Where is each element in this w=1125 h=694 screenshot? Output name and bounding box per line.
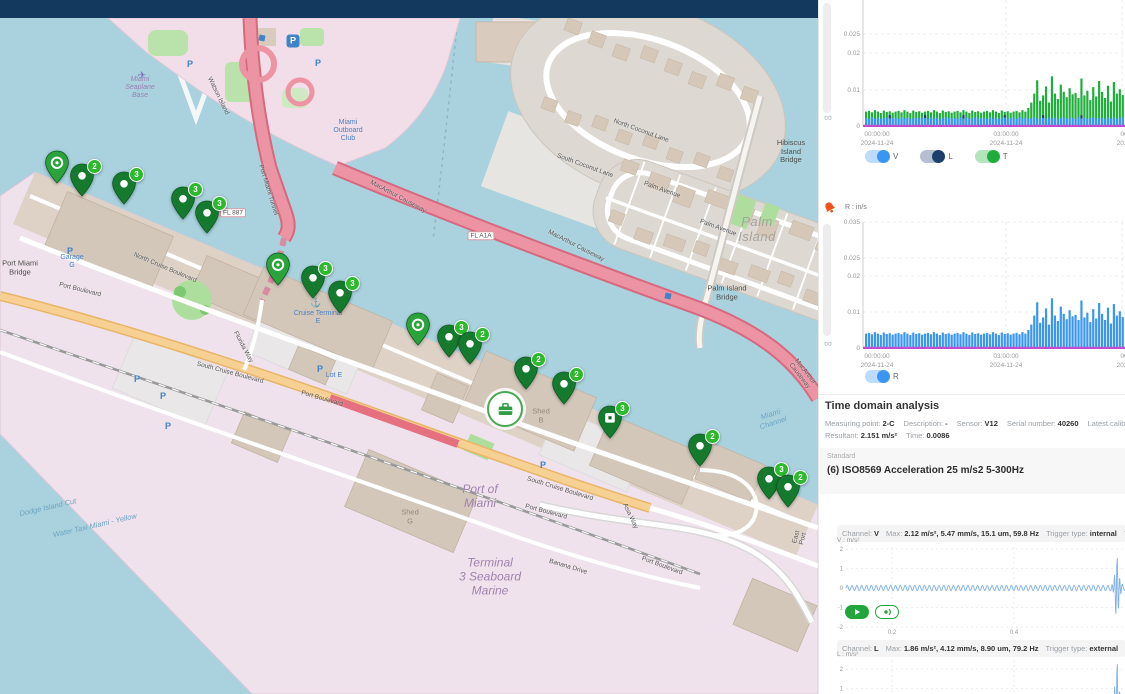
svg-text:2024-11-24: 2024-11-24 (861, 140, 894, 147)
channel-meta-value: 1.86 m/s², 4.12 mm/s, 8.90 um, 79.2 Hz (904, 644, 1039, 653)
svg-text:03:00:00: 03:00:00 (993, 353, 1019, 360)
svg-text:0: 0 (840, 586, 844, 592)
pin-icon: 2 (775, 474, 801, 508)
marker-count-badge: 3 (188, 182, 203, 197)
svg-text:0.01: 0.01 (847, 87, 860, 94)
channel-meta-value: internal (1090, 529, 1117, 538)
trend-chart-2-legend: R (865, 370, 899, 383)
parking-icon: P (134, 374, 140, 384)
series-toggle-R[interactable]: R (865, 370, 899, 383)
map-label: MacArthur Causeway (787, 357, 817, 390)
map-label: North Cruise Boulevard (132, 251, 197, 284)
pin-icon: 3 (111, 171, 137, 205)
svg-text:00:00:00: 00:00:00 (864, 131, 890, 138)
meta-label: Measuring point: (825, 419, 880, 428)
pin-icon (405, 312, 431, 346)
marker-count-badge: 3 (318, 261, 333, 276)
map-label: Watson Island (206, 76, 231, 116)
map-label: East Port (790, 527, 809, 548)
map-label: South Cruise Boulevard (196, 361, 264, 386)
measurement-meta: Measuring point:2-CDescription:-Sensor:V… (825, 419, 1125, 443)
channel-meta-value: external (1089, 644, 1118, 653)
play-icon (855, 609, 860, 615)
map-label: FL A1A (467, 231, 494, 240)
map-label: Port of Miami (462, 483, 497, 511)
parking-icon: P (187, 59, 193, 69)
top-navigation-bar (0, 0, 818, 18)
map-label: Port Boulevard (58, 281, 102, 299)
map-label: Dodge Island Cut (19, 497, 77, 518)
svg-text:1: 1 (840, 687, 844, 693)
parking-garage-icon: P (287, 35, 300, 48)
svg-text:2024-11-24: 2024-11-24 (1117, 362, 1125, 369)
meta-label: Description: (904, 419, 944, 428)
pin-icon: 2 (69, 163, 95, 197)
pin-icon: 3 (597, 405, 623, 439)
svg-text:06:00:00: 06:00:00 (1120, 131, 1125, 138)
svg-text:0: 0 (856, 123, 860, 130)
channel-meta-value: V (874, 529, 879, 538)
map-label: North Coconut Lane (612, 118, 669, 145)
wave-y-axis-label: L : m/s² (837, 651, 858, 658)
marker-count-badge: 2 (475, 327, 490, 342)
svg-text:0.2: 0.2 (888, 630, 897, 636)
map-label: Water Taxi Miami - Yellow (52, 512, 137, 540)
marker-count-badge: 2 (705, 429, 720, 444)
map-label: Miami Seaplane Base (125, 76, 155, 100)
marker-count-badge: 2 (531, 352, 546, 367)
sound-button[interactable] (875, 605, 899, 619)
map-label: Lot E (326, 372, 342, 380)
section-divider (819, 394, 1125, 395)
parking-icon: P (315, 58, 321, 68)
map-label: Palm Island Bridge (707, 284, 746, 301)
map-label: Terminal 3 Seaboard Marine (459, 556, 521, 597)
series-toggle-L[interactable]: L (920, 150, 952, 163)
map-label: Shed G (401, 508, 419, 525)
parking-icon: P (67, 246, 73, 256)
marker-count-badge: 2 (87, 159, 102, 174)
pin-icon (265, 252, 291, 286)
map-label: South Cruise Boulevard (526, 475, 594, 502)
marker-count-badge: 2 (569, 367, 584, 382)
meta-label: Latest calibration: (1088, 419, 1125, 428)
infinity-icon[interactable]: ∞ (821, 113, 835, 123)
svg-text:2024-11-24: 2024-11-24 (990, 140, 1023, 147)
trend-chart-1-vertical-slider[interactable] (823, 3, 831, 113)
map-label: Shed B (532, 407, 550, 424)
legend-label: R (893, 372, 899, 381)
svg-text:2024-11-24: 2024-11-24 (1117, 140, 1125, 147)
pin-icon: 2 (551, 371, 577, 405)
map-label: Palm Island (727, 215, 788, 245)
map-label: Miami Channel (747, 404, 796, 435)
map-label: Port Miami Bridge (2, 259, 38, 276)
meta-value: 40260 (1058, 419, 1079, 428)
map-label: Port Miami Tunnel (257, 164, 279, 216)
svg-text:0.01: 0.01 (847, 309, 860, 316)
svg-text:2: 2 (840, 547, 844, 553)
trend-chart-1-legend: VLT (865, 150, 1008, 163)
channel-meta-value: 2.12 m/s², 5.47 mm/s, 15.1 um, 59.8 Hz (904, 529, 1039, 538)
svg-text:-1: -1 (838, 606, 844, 612)
channel-meta-label: Trigger type: (1046, 644, 1088, 653)
marker-count-badge: 3 (345, 276, 360, 291)
svg-text:2024-11-24: 2024-11-24 (861, 362, 894, 369)
meta-value: V12 (985, 419, 998, 428)
play-button[interactable] (845, 605, 869, 619)
infinity-icon[interactable]: ∞ (821, 339, 835, 349)
svg-text:0.02: 0.02 (847, 50, 860, 57)
standard-value: (6) ISO8569 Acceleration 25 m/s2 5-300Hz (827, 465, 1024, 476)
map[interactable]: Miami Seaplane BaseWatson IslandMiami Ou… (0, 0, 818, 694)
svg-text:2: 2 (840, 667, 844, 673)
meta-value: 2.151 m/s² (861, 431, 897, 440)
series-toggle-T[interactable]: T (975, 150, 1008, 163)
charts-canvas: 0.0250.020.01000:00:002024-11-2403:00:00… (819, 0, 1125, 694)
legend-label: L (948, 152, 952, 161)
marker-count-badge: 3 (129, 167, 144, 182)
meta-label: Serial number: (1007, 419, 1056, 428)
pin-icon: 3 (327, 280, 353, 314)
series-toggle-V[interactable]: V (865, 150, 898, 163)
map-label: Miami Outboard Club (333, 119, 362, 143)
channel-meta-label: Max: (886, 529, 902, 538)
map-label: MacArthur Causeway (369, 179, 427, 215)
meta-label: Resultant: (825, 431, 859, 440)
channel-meta-label: Max: (886, 644, 902, 653)
svg-text:2024-11-24: 2024-11-24 (990, 362, 1023, 369)
map-label: Garage G (60, 254, 83, 270)
wave-y-axis-label: V : m/s² (837, 537, 859, 544)
section-title: Time domain analysis (825, 400, 939, 412)
parking-icon: P (165, 421, 171, 431)
parking-icon: P (540, 460, 546, 470)
map-label: Banana Drive (548, 558, 588, 577)
pin-icon: 3 (194, 200, 220, 234)
standard-box[interactable]: Standard (6) ISO8569 Acceleration 25 m/s… (819, 448, 1125, 494)
app: Miami Seaplane BaseWatson IslandMiami Ou… (0, 0, 1125, 694)
marker-count-badge: 3 (212, 196, 227, 211)
legend-label: V (893, 152, 898, 161)
pin-icon: 2 (687, 433, 713, 467)
svg-text:0.02: 0.02 (847, 273, 860, 280)
map-label: FL 887 (220, 208, 246, 217)
briefcase-icon (487, 391, 523, 427)
meta-label: Time: (906, 431, 924, 440)
standard-label: Standard (827, 453, 855, 460)
pin-icon: 2 (457, 331, 483, 365)
svg-text:0: 0 (856, 345, 860, 352)
pin-icon: 3 (300, 265, 326, 299)
map-label: Port Boulevard (300, 389, 343, 408)
svg-text:06:00:00: 06:00:00 (1120, 353, 1125, 360)
channel-l-header: Channel:LMax:1.86 m/s², 4.12 mm/s, 8.90 … (837, 640, 1125, 657)
meta-value: 0.0086 (927, 431, 950, 440)
map-label: Hibiscus Island Bridge (777, 139, 805, 165)
parking-icon: P (317, 364, 323, 374)
anchor-icon: ⚓ (310, 298, 321, 309)
chart-unit-label: R : in/s (845, 204, 867, 211)
marker-count-badge: 3 (615, 401, 630, 416)
map-label: Port Boulevard (524, 503, 567, 521)
map-label: Florida Way (232, 330, 255, 364)
map-label: South Coconut Lane (556, 152, 614, 179)
alarm-icon[interactable] (823, 201, 837, 215)
airplane-icon: ✈ (138, 71, 146, 82)
meta-label: Sensor: (957, 419, 983, 428)
trend-chart-2-vertical-slider[interactable] (823, 224, 831, 336)
pin-icon (44, 150, 70, 184)
svg-text:00:00:00: 00:00:00 (864, 353, 890, 360)
map-label: Asia Way (621, 502, 639, 530)
marker-count-badge: 2 (793, 470, 808, 485)
svg-text:0.035: 0.035 (844, 219, 861, 226)
svg-text:1: 1 (840, 567, 844, 573)
meta-value: - (945, 419, 948, 428)
pin-icon: 2 (513, 356, 539, 390)
svg-text:0.025: 0.025 (844, 255, 861, 262)
channel-meta-value: L (874, 644, 879, 653)
map-label: Palm Avenue (699, 218, 737, 238)
svg-text:0.4: 0.4 (1010, 630, 1019, 636)
channel-v-header: Channel:VMax:2.12 m/s², 5.47 mm/s, 15.1 … (837, 525, 1125, 542)
meta-value: 2-C (882, 419, 894, 428)
map-label: Port Boulevard (641, 555, 684, 577)
map-label: MacArthur Causeway (547, 229, 606, 264)
svg-text:03:00:00: 03:00:00 (993, 131, 1019, 138)
svg-text:0.025: 0.025 (844, 31, 861, 38)
channel-meta-label: Trigger type: (1046, 529, 1088, 538)
sound-icon (882, 607, 893, 617)
parking-icon: P (160, 391, 166, 401)
analysis-panel: 0.0250.020.01000:00:002024-11-2403:00:00… (818, 0, 1125, 694)
map-label: Palm Avenue (643, 180, 681, 200)
svg-text:-2: -2 (838, 625, 844, 631)
pin-icon: 3 (170, 186, 196, 220)
legend-label: T (1003, 152, 1008, 161)
